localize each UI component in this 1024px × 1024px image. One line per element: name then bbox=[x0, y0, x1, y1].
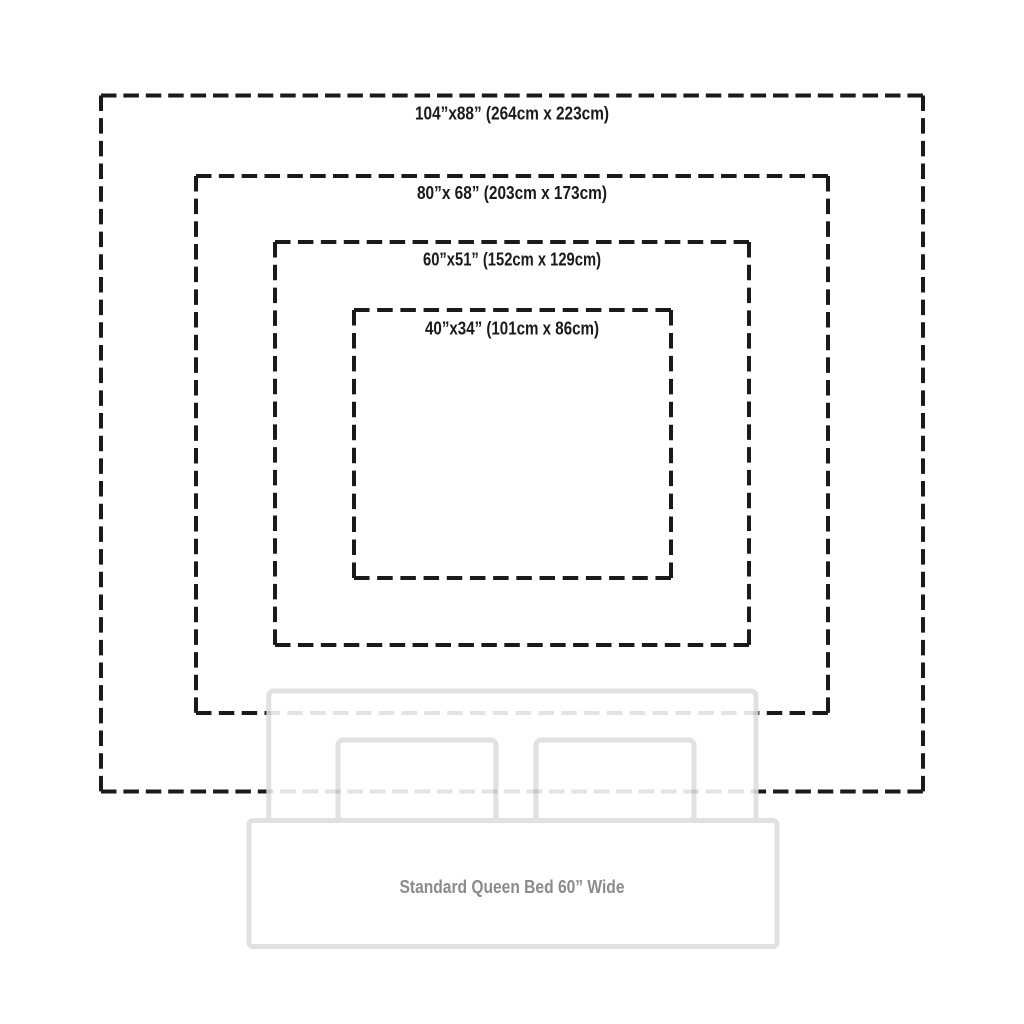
svg-text:80”x 68” (203cm x 173cm): 80”x 68” (203cm x 173cm) bbox=[417, 183, 607, 203]
svg-text:Standard Queen Bed 60” Wide: Standard Queen Bed 60” Wide bbox=[400, 877, 625, 897]
svg-text:60”x51” (152cm x 129cm): 60”x51” (152cm x 129cm) bbox=[423, 250, 601, 270]
svg-text:104”x88” (264cm x 223cm): 104”x88” (264cm x 223cm) bbox=[415, 104, 609, 124]
svg-text:40”x34” (101cm x 86cm): 40”x34” (101cm x 86cm) bbox=[425, 319, 599, 339]
